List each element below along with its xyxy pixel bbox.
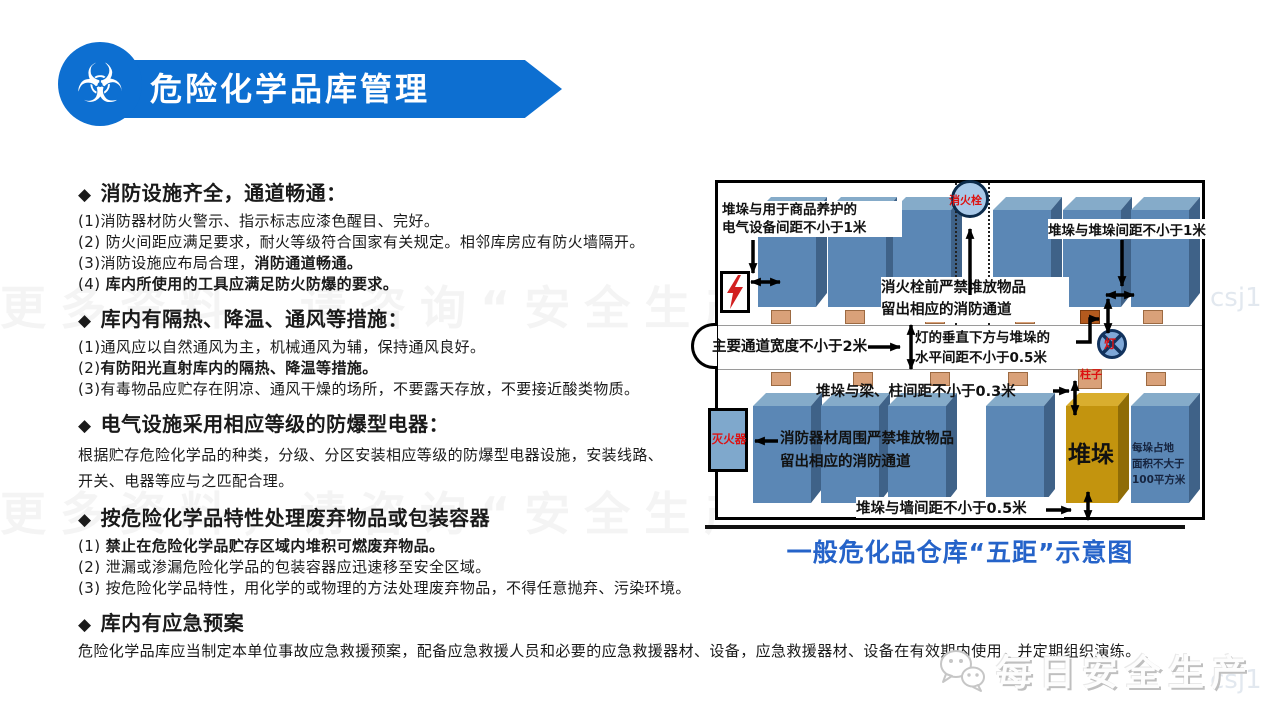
lamp-fixture xyxy=(1146,372,1166,386)
aisle-upper-line xyxy=(718,325,1202,326)
lightning-icon xyxy=(723,274,747,310)
label-stack-area-rule: 每垛占地 面积不大于 100平方米 xyxy=(1132,441,1192,488)
section-heading: ◆库内有应急预案 xyxy=(78,610,1238,638)
floor-line xyxy=(705,525,1185,529)
label-stack-stack-distance: 堆垛与堆垛间距不小于1米 xyxy=(1048,219,1224,239)
biohazard-icon: ☣ xyxy=(58,42,142,126)
label-stack-electric-distance: 堆垛与用于商品养护的 电气设备间距不小于1米 xyxy=(722,201,902,237)
label-lamp-distance: 灯的垂直下方与堆垛的 水平间距不小于0.5米 xyxy=(915,329,1083,368)
footer-logo-text: 每日安全生产 xyxy=(996,644,1254,696)
label-fire-equipment-rule: 消防器材周围严禁堆放物品 留出相应的消防通道 xyxy=(780,428,1018,474)
diamond-bullet-icon: ◆ xyxy=(78,311,92,331)
wechat-icon xyxy=(936,647,988,693)
label-main-aisle-width: 主要通道宽度不小于2米 xyxy=(712,335,880,356)
label-wall-distance: 堆垛与墙间距不小于0.5米 xyxy=(856,497,1064,518)
diamond-bullet-icon: ◆ xyxy=(78,416,92,436)
diagram-caption: 一般危化品仓库“五距”示意图 xyxy=(715,533,1205,569)
label-pillar: 柱子 xyxy=(1080,366,1110,382)
lamp-fixture xyxy=(771,372,791,386)
warehouse-diagram: 堆垛与用于商品养护的 电气设备间距不小于1米 消火栓 消火栓前严禁堆放物品 留出… xyxy=(715,180,1205,520)
aisle-lower-line xyxy=(718,369,1202,370)
stack-box xyxy=(1063,196,1133,308)
label-fire-hydrant: 消火栓 xyxy=(949,192,993,208)
diamond-bullet-icon: ◆ xyxy=(78,510,92,530)
label-hydrant-rule: 消火栓前严禁堆放物品 留出相应的消防通道 xyxy=(881,277,1069,322)
lamp-fixture xyxy=(1143,310,1163,324)
label-beam-pillar-distance: 堆垛与梁、柱间距不小于0.3米 xyxy=(816,380,1058,401)
electrical-equipment-box xyxy=(720,271,750,313)
label-stack: 堆垛 xyxy=(1062,435,1120,469)
slide: 危险化学品库管理 ☣ 更多资料，请咨询“安全生产” 更多资料，请咨询“安全生产”… xyxy=(0,0,1280,720)
footer-logo: 每日安全生产 xyxy=(936,644,1254,696)
lamp-fixture xyxy=(1080,310,1100,324)
page-title: 危险化学品库管理 xyxy=(150,60,430,118)
lamp-fixture xyxy=(845,310,865,324)
section-line: (3) 按危险化学品特性，用化学的或物理的方法处理废弃物品，不得任意抛弃、污染环… xyxy=(78,578,1238,599)
diamond-bullet-icon: ◆ xyxy=(78,185,92,205)
label-lamp: 灯 xyxy=(1104,335,1116,352)
stack-box xyxy=(1131,196,1201,308)
lamp-fixture xyxy=(771,310,791,324)
label-fire-extinguisher: 灭火器 xyxy=(710,431,748,447)
diamond-bullet-icon: ◆ xyxy=(78,615,92,635)
